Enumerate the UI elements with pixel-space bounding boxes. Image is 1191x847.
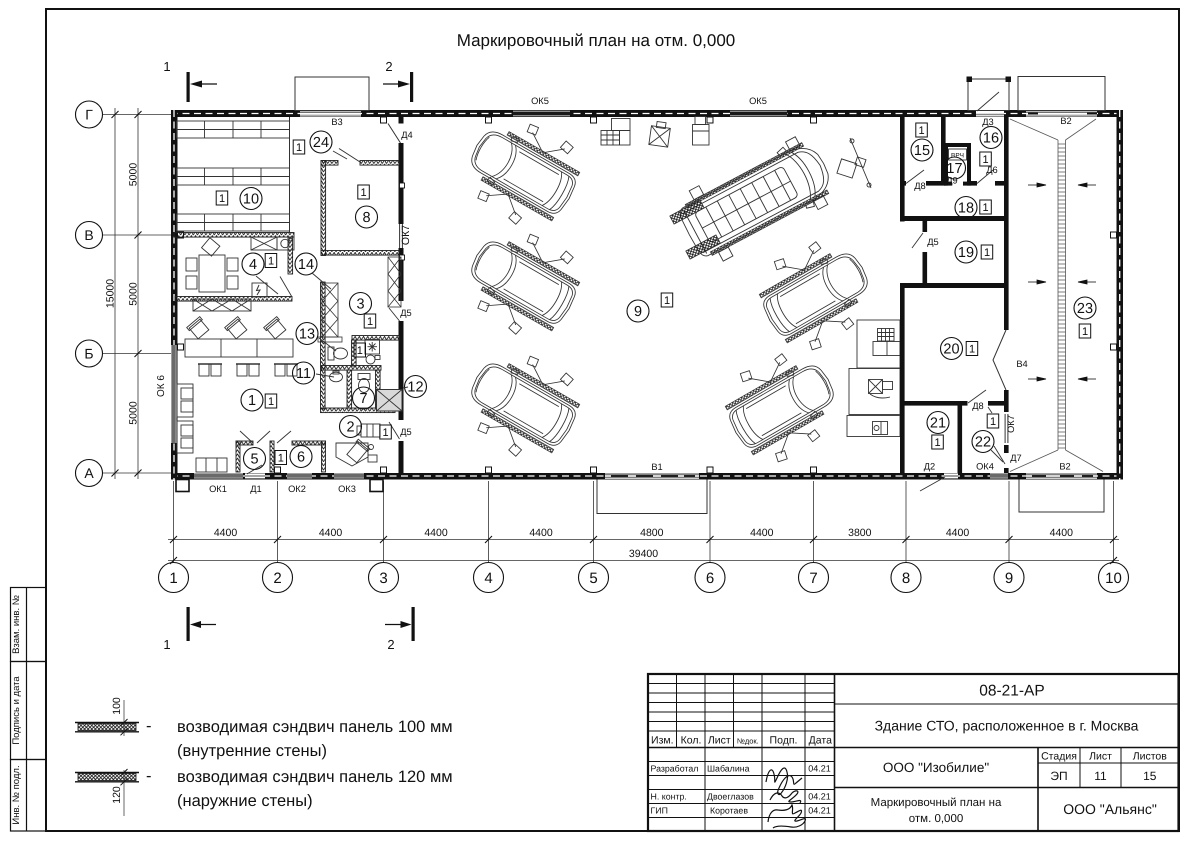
svg-text:отм. 0,000: отм. 0,000 — [909, 813, 964, 825]
svg-text:Д7: Д7 — [1010, 453, 1021, 463]
svg-text:4: 4 — [484, 570, 492, 587]
svg-text:19: 19 — [958, 245, 974, 261]
svg-text:4400: 4400 — [1050, 527, 1074, 539]
svg-text:1: 1 — [984, 247, 990, 259]
svg-text:2: 2 — [387, 637, 394, 652]
svg-text:20: 20 — [943, 341, 959, 357]
svg-text:ВРЧ: ВРЧ — [951, 153, 964, 160]
svg-text:10: 10 — [1105, 570, 1122, 587]
svg-text:1: 1 — [990, 416, 996, 428]
svg-text:17: 17 — [946, 161, 962, 177]
svg-text:24: 24 — [313, 135, 329, 151]
svg-text:1: 1 — [169, 570, 177, 587]
svg-text:Д8: Д8 — [972, 401, 983, 411]
svg-text:11: 11 — [1094, 769, 1107, 783]
svg-text:Взам. инв. №: Взам. инв. № — [11, 595, 22, 654]
svg-text:1: 1 — [360, 187, 366, 199]
svg-text:Инв. № подл.: Инв. № подл. — [11, 765, 22, 824]
svg-text:7: 7 — [809, 570, 817, 587]
svg-text:Разработал: Разработал — [651, 764, 699, 774]
svg-text:1: 1 — [1082, 326, 1088, 338]
svg-text:Д3: Д3 — [982, 117, 993, 127]
svg-text:4800: 4800 — [640, 527, 664, 539]
svg-text:1: 1 — [664, 295, 670, 307]
svg-text:Коротаев: Коротаев — [710, 806, 748, 816]
svg-text:21: 21 — [930, 415, 946, 431]
svg-text:ОК5: ОК5 — [749, 96, 767, 106]
svg-text:ОК4: ОК4 — [976, 462, 994, 472]
svg-text:4400: 4400 — [319, 527, 343, 539]
svg-text:1: 1 — [219, 193, 225, 205]
svg-text:Листов: Листов — [1133, 751, 1168, 763]
svg-text:4400: 4400 — [946, 527, 970, 539]
svg-text:Лист: Лист — [708, 735, 731, 747]
svg-text:В2: В2 — [1060, 116, 1071, 126]
svg-text:В1: В1 — [651, 462, 662, 472]
svg-text:2: 2 — [346, 419, 354, 435]
svg-text:возводимая сэндвич панель 100: возводимая сэндвич панель 100 мм — [177, 718, 453, 736]
svg-text:Стадия: Стадия — [1041, 751, 1077, 763]
svg-text:8: 8 — [362, 210, 370, 226]
svg-text:Маркировочный план на отм. 0,0: Маркировочный план на отм. 0,000 — [457, 31, 736, 50]
svg-text:Здание СТО, расположенное в г.: Здание СТО, расположенное в г. Москва — [875, 718, 1139, 734]
svg-text:9: 9 — [634, 304, 642, 320]
svg-text:5000: 5000 — [128, 401, 140, 425]
svg-text:№док.: №док. — [737, 737, 759, 746]
svg-text:(внутренние стены): (внутренние стены) — [177, 742, 327, 760]
svg-text:Д8: Д8 — [914, 181, 925, 191]
svg-text:23: 23 — [1077, 301, 1093, 317]
svg-text:9: 9 — [1005, 570, 1013, 587]
svg-text:1: 1 — [357, 345, 363, 357]
svg-text:В4: В4 — [1016, 359, 1027, 369]
svg-text:ЭП: ЭП — [1050, 769, 1067, 783]
svg-text:возводимая сэндвич панель 120: возводимая сэндвич панель 120 мм — [177, 768, 453, 786]
svg-text:39400: 39400 — [629, 548, 658, 560]
svg-text:Д9: Д9 — [946, 176, 957, 186]
svg-text:11: 11 — [296, 366, 311, 382]
svg-text:Д1: Д1 — [250, 484, 261, 494]
svg-text:1: 1 — [248, 393, 256, 409]
svg-text:15000: 15000 — [105, 279, 117, 308]
svg-text:Б: Б — [84, 346, 93, 362]
svg-text:Г: Г — [85, 107, 93, 123]
svg-text:1: 1 — [296, 142, 302, 154]
svg-text:8: 8 — [902, 570, 910, 587]
svg-text:4400: 4400 — [529, 527, 553, 539]
svg-text:14: 14 — [298, 257, 314, 273]
svg-text:2: 2 — [385, 59, 392, 74]
svg-text:Д2: Д2 — [924, 462, 935, 472]
svg-text:6: 6 — [706, 570, 714, 587]
svg-text:-: - — [146, 767, 152, 785]
svg-text:1: 1 — [268, 396, 274, 408]
svg-text:А: А — [84, 465, 94, 481]
svg-text:Д5: Д5 — [927, 237, 938, 247]
svg-text:3800: 3800 — [848, 527, 872, 539]
svg-text:1: 1 — [918, 125, 924, 137]
svg-text:ОК1: ОК1 — [209, 484, 227, 494]
svg-text:1: 1 — [163, 637, 170, 652]
svg-text:08-21-АР: 08-21-АР — [979, 683, 1044, 700]
svg-text:1: 1 — [278, 453, 284, 465]
svg-text:10: 10 — [243, 191, 259, 207]
svg-text:ОК 6: ОК 6 — [156, 375, 167, 397]
svg-text:ОК2: ОК2 — [288, 484, 306, 494]
svg-text:Маркировочный план на: Маркировочный план на — [871, 797, 1002, 809]
svg-text:5000: 5000 — [128, 282, 140, 306]
svg-text:2: 2 — [273, 570, 281, 587]
svg-text:1: 1 — [969, 344, 975, 356]
svg-text:1: 1 — [367, 316, 373, 328]
svg-text:1: 1 — [982, 202, 988, 214]
svg-text:5000: 5000 — [128, 163, 140, 187]
svg-text:Д5: Д5 — [400, 308, 411, 318]
svg-text:3: 3 — [356, 296, 364, 312]
svg-text:Изм.: Изм. — [651, 735, 674, 747]
svg-text:120: 120 — [111, 786, 123, 804]
svg-text:5: 5 — [589, 570, 597, 587]
svg-text:4: 4 — [249, 257, 257, 273]
svg-text:Подп.: Подп. — [770, 735, 798, 747]
svg-text:12: 12 — [407, 379, 423, 395]
svg-text:Н. контр.: Н. контр. — [651, 792, 687, 802]
svg-text:ООО "Изобилие": ООО "Изобилие" — [883, 760, 989, 775]
svg-text:15: 15 — [1143, 769, 1157, 783]
svg-text:Д6: Д6 — [986, 165, 997, 175]
svg-text:13: 13 — [299, 326, 315, 342]
svg-text:1: 1 — [163, 59, 170, 74]
svg-text:5: 5 — [250, 451, 258, 467]
svg-text:18: 18 — [958, 200, 974, 216]
svg-text:Д4: Д4 — [401, 130, 412, 140]
svg-text:Подпись и дата: Подпись и дата — [11, 676, 22, 745]
svg-text:Дата: Дата — [809, 735, 832, 747]
svg-text:Лист: Лист — [1089, 751, 1112, 763]
svg-text:В: В — [84, 227, 93, 243]
svg-text:(наружние стены): (наружние стены) — [177, 792, 313, 810]
svg-text:04.21: 04.21 — [808, 792, 831, 802]
svg-text:4400: 4400 — [214, 527, 238, 539]
svg-text:ОК5: ОК5 — [531, 96, 549, 106]
svg-text:15: 15 — [914, 143, 930, 159]
svg-text:В3: В3 — [331, 117, 342, 127]
svg-text:04.21: 04.21 — [808, 764, 831, 774]
svg-text:-: - — [146, 717, 152, 735]
svg-text:ГИП: ГИП — [651, 806, 668, 816]
svg-text:22: 22 — [975, 434, 991, 450]
svg-text:ОК3: ОК3 — [338, 484, 356, 494]
svg-text:ОК7: ОК7 — [1006, 415, 1016, 433]
svg-text:Шабалина: Шабалина — [707, 764, 750, 774]
svg-text:16: 16 — [983, 130, 999, 146]
svg-text:1: 1 — [934, 437, 940, 449]
svg-text:ООО "Альянс": ООО "Альянс" — [1063, 801, 1157, 817]
svg-text:1: 1 — [268, 256, 274, 268]
svg-text:04.21: 04.21 — [808, 806, 831, 816]
svg-text:В2: В2 — [1059, 462, 1070, 472]
svg-text:7: 7 — [359, 391, 367, 407]
svg-text:1: 1 — [382, 427, 388, 439]
svg-text:6: 6 — [297, 449, 305, 465]
svg-text:ОК7: ОК7 — [400, 225, 412, 245]
svg-text:Кол.: Кол. — [681, 735, 702, 747]
svg-text:4400: 4400 — [424, 527, 448, 539]
svg-text:3: 3 — [379, 570, 387, 587]
svg-text:Двоеглазов: Двоеглазов — [707, 792, 754, 802]
svg-text:100: 100 — [111, 697, 123, 715]
svg-text:4400: 4400 — [750, 527, 774, 539]
svg-text:Д5: Д5 — [400, 427, 411, 437]
